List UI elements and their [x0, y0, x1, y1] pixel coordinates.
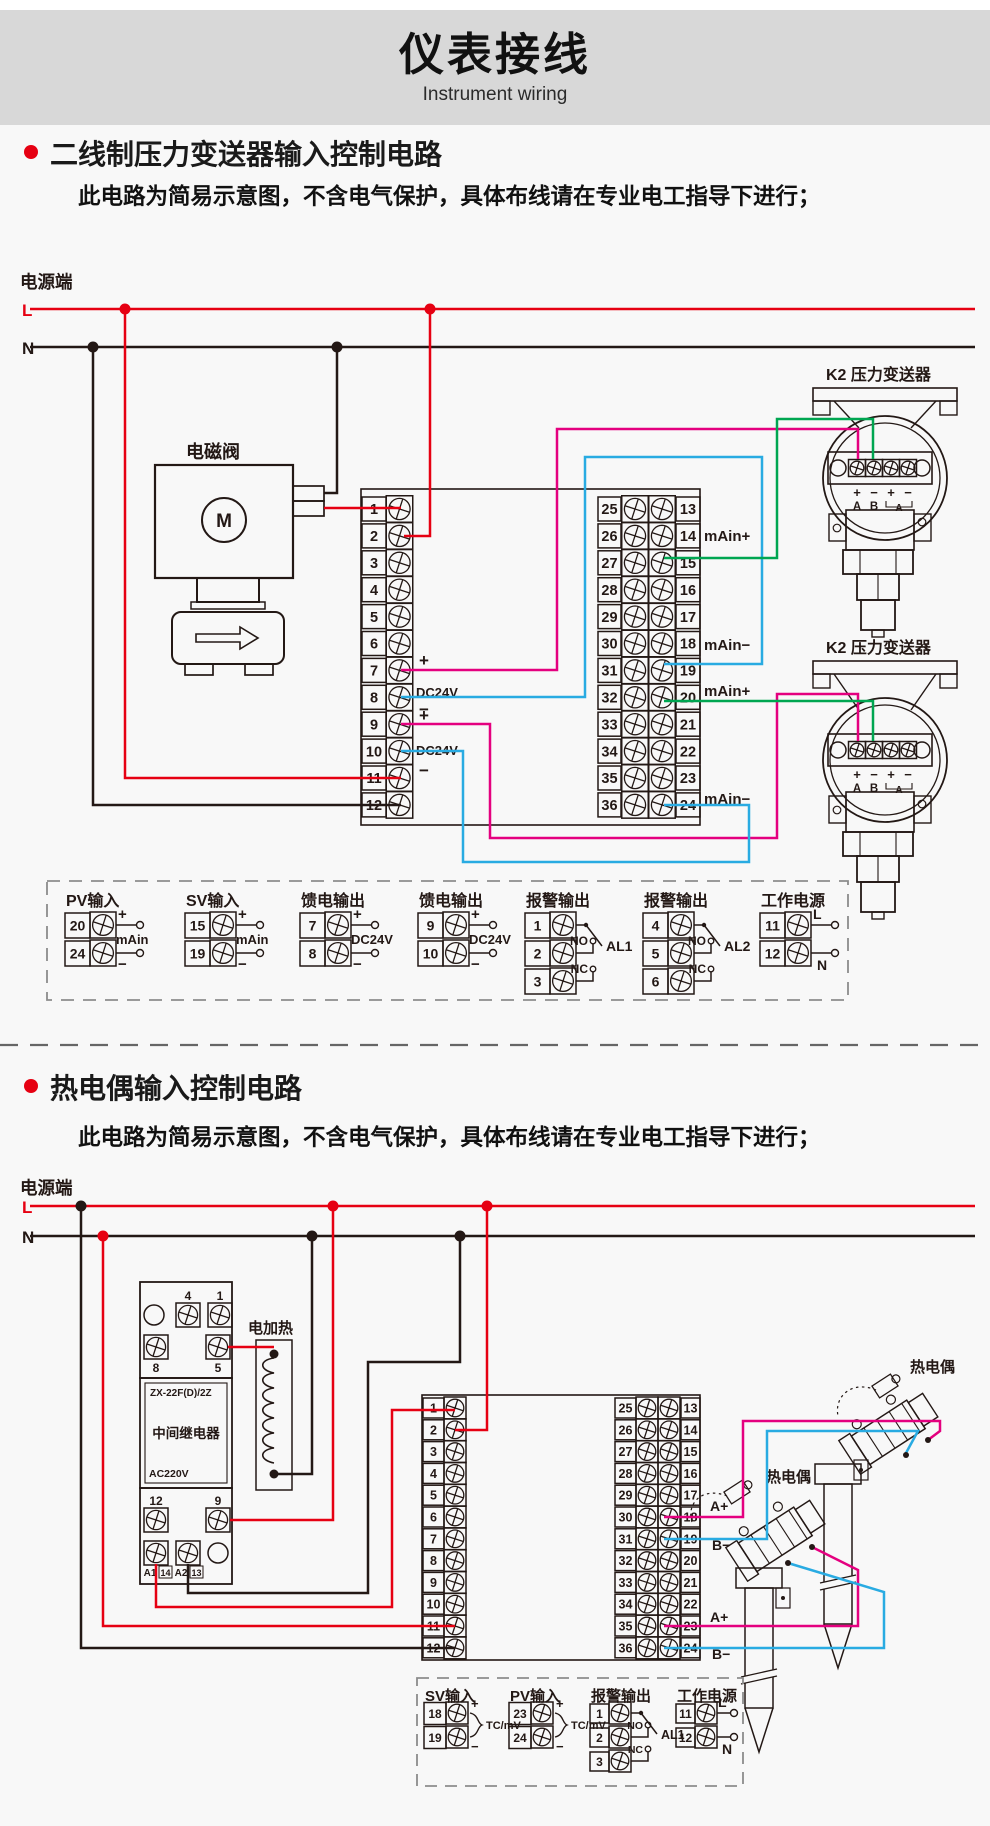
background: 仪表接线Instrument wiring	[0, 0, 990, 1826]
line-n-label: N	[22, 1228, 34, 1247]
nc-label: NC	[571, 962, 589, 976]
terminal-number: 12	[765, 946, 781, 962]
relay-pin-label: 14	[160, 1568, 170, 1578]
terminal-number: 11	[679, 1707, 692, 1721]
terminal-number: 14	[680, 529, 696, 545]
junction-dot	[98, 1231, 109, 1242]
terminal-number: 1	[370, 502, 378, 518]
terminal-number: 6	[652, 974, 660, 990]
sign-label: −	[870, 485, 878, 500]
sign-label: −	[471, 956, 480, 973]
terminal-number: 33	[601, 717, 617, 733]
bullet-icon	[24, 145, 38, 159]
terminal-number: 3	[430, 1445, 437, 1459]
terminal-number: 1	[596, 1707, 603, 1721]
junction-dot	[925, 1437, 931, 1443]
terminal-number: 21	[684, 1576, 698, 1590]
section-2-heading: 热电偶输入控制电路	[50, 1072, 303, 1104]
junction-dot	[455, 1231, 466, 1242]
terminal-number: 9	[427, 918, 435, 934]
terminal-number: 32	[601, 691, 617, 707]
terminal-number: 8	[309, 946, 317, 962]
terminal-number: 11	[765, 918, 780, 934]
transmitter-label: K2 压力变送器	[826, 638, 932, 657]
sign-label: +	[238, 906, 247, 923]
terminal-number: 4	[430, 1467, 437, 1481]
terminal-number: 19	[680, 664, 696, 680]
terminal-number: 16	[684, 1467, 698, 1481]
terminal-number: 17	[684, 1489, 698, 1503]
sign-label: −	[870, 767, 878, 782]
terminal-number: 20	[684, 1554, 698, 1568]
terminal-number: 6	[430, 1511, 437, 1525]
terminal-number: 17	[680, 610, 696, 626]
relay-pin-label: 13	[191, 1568, 201, 1578]
a-plus-label: A+	[710, 1498, 728, 1514]
instrument-wiring-diagram: 仪表接线Instrument wiring二线制压力变送器输入控制电路此电路为简…	[0, 0, 990, 1826]
sign-label: +	[853, 767, 861, 782]
sign-label: −	[353, 956, 362, 973]
terminal-number: 15	[190, 918, 206, 934]
junction-dot	[482, 1201, 493, 1212]
nc-label: NC	[628, 1744, 644, 1756]
sign-label: +	[419, 706, 429, 725]
line-n-label: N	[817, 957, 827, 973]
terminal-number: 4	[370, 583, 378, 599]
junction-dot	[76, 1201, 87, 1212]
heater-label: 电加热	[248, 1319, 293, 1337]
section-1-heading: 二线制压力变送器输入控制电路	[50, 138, 443, 170]
line-l-label: L	[22, 301, 32, 320]
terminal-number: 9	[430, 1576, 437, 1590]
junction-dot	[809, 1544, 815, 1550]
terminal-number: 9	[370, 717, 378, 733]
loop-a-label: A	[895, 503, 902, 514]
terminal-number: 28	[601, 583, 617, 599]
terminal-number: 3	[534, 974, 542, 990]
sign-label: −	[556, 1739, 564, 1754]
terminal-number: 32	[619, 1554, 633, 1568]
mid-label: DC24V	[469, 932, 511, 947]
junction-dot	[785, 1560, 791, 1566]
line-n-label: N	[22, 339, 34, 358]
terminal-number: 26	[601, 529, 617, 545]
power-terminal-label: 电源端	[20, 272, 73, 292]
terminal-number: 7	[370, 664, 378, 680]
sign-label: +	[471, 906, 480, 923]
sign-label: −	[419, 761, 429, 780]
junction-dot	[88, 342, 99, 353]
junction-dot	[120, 304, 131, 315]
terminal-number: 3	[370, 556, 378, 572]
sign-label: −	[238, 956, 247, 973]
loop-a-label: A	[895, 785, 902, 796]
terminal-number: 8	[370, 691, 378, 707]
junction-dot	[307, 1231, 318, 1242]
terminal-number: 20	[680, 691, 696, 707]
terminal-number: 3	[596, 1755, 603, 1769]
terminal-number: 34	[619, 1598, 633, 1612]
terminal-number: 29	[619, 1489, 633, 1503]
terminal-number: 31	[601, 664, 617, 680]
terminal-number: 23	[680, 771, 696, 787]
page: 仪表接线Instrument wiring二线制压力变送器输入控制电路此电路为简…	[0, 0, 990, 1826]
terminal-number: 5	[652, 946, 660, 962]
legend-title: 报警输出	[644, 891, 708, 910]
terminal-number: 5	[370, 610, 378, 626]
ab-label: B	[870, 783, 878, 795]
junction-dot	[332, 342, 343, 353]
terminal-number: 30	[619, 1511, 633, 1525]
solenoid-motor-label: M	[216, 511, 232, 532]
sign-label: +	[887, 485, 895, 500]
solenoid-label: 电磁阀	[186, 441, 240, 462]
ab-label: B	[870, 501, 878, 513]
junction-dot	[781, 1596, 785, 1600]
terminal-number: 13	[680, 502, 696, 518]
sign-label: −	[471, 1739, 479, 1754]
terminal-number: 20	[70, 918, 86, 934]
terminal-number: 5	[430, 1489, 437, 1503]
terminal-number: 15	[684, 1445, 698, 1459]
mid-label: mAin	[236, 932, 269, 947]
terminal-number: 19	[190, 946, 206, 962]
relay-pin-label: 5	[215, 1361, 222, 1375]
terminal-number: 12	[679, 1731, 693, 1745]
sign-label: +	[887, 767, 895, 782]
terminal-number: 14	[684, 1423, 698, 1437]
terminal-number: 2	[534, 946, 542, 962]
legend-title: 报警输出	[526, 891, 590, 910]
terminal-number: 25	[601, 502, 617, 518]
relay-model: ZX-22F(D)/2Z	[150, 1388, 212, 1399]
terminal-number: 18	[428, 1707, 442, 1721]
ab-label: A	[853, 783, 861, 795]
terminal-number: 31	[619, 1532, 633, 1546]
relay-name: 中间继电器	[152, 1425, 220, 1441]
terminal-number: 1	[430, 1402, 437, 1416]
terminal-number: 2	[370, 529, 378, 545]
terminal-number: 29	[601, 610, 617, 626]
relay-pin-label: A2	[175, 1568, 188, 1579]
alarm-name: AL1	[606, 938, 633, 954]
page-background	[0, 0, 990, 1826]
junction-dot	[425, 304, 436, 315]
terminal-number: 24	[513, 1731, 527, 1745]
line-n-label: N	[722, 1741, 732, 1757]
legend-title: PV输入	[66, 891, 119, 910]
a-plus-label: A+	[710, 1609, 728, 1625]
main-minus-label: mAin−	[704, 637, 751, 654]
junction-dot	[903, 1452, 909, 1458]
relay-pin-label: 9	[215, 1494, 222, 1508]
no-label: NO	[688, 934, 706, 948]
terminal-number: 13	[684, 1402, 698, 1416]
sign-label: −	[904, 767, 912, 782]
terminal-number: 23	[513, 1707, 527, 1721]
mid-label: mAin	[116, 932, 149, 947]
relay-pin-label: 4	[185, 1289, 192, 1303]
junction-dot	[270, 1350, 279, 1359]
no-label: NO	[570, 934, 588, 948]
sign-label: +	[471, 1696, 479, 1711]
terminal-number: 8	[430, 1554, 437, 1568]
alarm-name: AL2	[724, 938, 751, 954]
terminal-number: 25	[619, 1402, 633, 1416]
terminal-number: 33	[619, 1576, 633, 1590]
terminal-number: 30	[601, 637, 617, 653]
terminal-number: 28	[619, 1467, 633, 1481]
thermocouple-label: 热电偶	[910, 1358, 955, 1376]
relay-voltage: AC220V	[149, 1468, 189, 1480]
page-subtitle: Instrument wiring	[423, 84, 568, 105]
nc-label: NC	[689, 962, 707, 976]
sign-label: +	[353, 906, 362, 923]
sign-label: +	[853, 485, 861, 500]
terminal-number: 24	[70, 946, 86, 962]
terminal-number: 4	[652, 918, 660, 934]
terminal-number: 22	[684, 1598, 698, 1612]
terminal-number: 10	[423, 946, 439, 962]
terminal-number: 27	[619, 1445, 633, 1459]
terminal-number: 6	[370, 637, 378, 653]
relay-pin-label: 1	[217, 1289, 224, 1303]
junction-dot	[859, 1468, 863, 1472]
ab-label: A	[853, 501, 861, 513]
section-1-note: 此电路为简易示意图，不含电气保护，具体布线请在专业电工指导下进行；	[78, 183, 821, 209]
page-title: 仪表接线	[398, 29, 591, 80]
relay-pin-label: 12	[149, 1494, 163, 1508]
terminal-number: 2	[430, 1423, 437, 1437]
terminal-number: 27	[601, 556, 617, 572]
relay-pin-label: 8	[153, 1361, 160, 1375]
sign-label: −	[904, 485, 912, 500]
terminal-number: 34	[601, 744, 617, 760]
sign-label: +	[118, 906, 127, 923]
terminal-number: 2	[596, 1731, 603, 1745]
section-2-note: 此电路为简易示意图，不含电气保护，具体布线请在专业电工指导下进行；	[78, 1124, 821, 1150]
top-margin	[0, 0, 990, 10]
no-label: NO	[627, 1720, 643, 1732]
terminal-number: 7	[430, 1532, 437, 1546]
sign-label: +	[419, 651, 429, 670]
terminal-number: 35	[601, 771, 617, 787]
main-plus-label: mAin+	[704, 528, 751, 545]
main-plus-label: mAin+	[704, 683, 751, 700]
junction-dot	[328, 1201, 339, 1212]
terminal-number: 36	[619, 1641, 633, 1655]
power-terminal-label: 电源端	[20, 1178, 73, 1198]
terminal-number: 18	[680, 637, 696, 653]
sign-label: +	[556, 1696, 564, 1711]
terminal-number: 7	[309, 918, 317, 934]
transmitter-label: K2 压力变送器	[826, 365, 932, 384]
terminal-number: 22	[680, 744, 696, 760]
line-l-label: L	[718, 1694, 727, 1710]
terminal-number: 36	[601, 798, 617, 814]
legend-title: SV输入	[186, 891, 239, 910]
mid-label: DC24V	[351, 932, 393, 947]
bullet-icon	[24, 1079, 38, 1093]
terminal-number: 26	[619, 1423, 633, 1437]
terminal-number: 1	[534, 918, 542, 934]
thermocouple-label: 热电偶	[766, 1468, 811, 1486]
terminal-number: 16	[680, 583, 696, 599]
sign-label: −	[118, 956, 127, 973]
line-l-label: L	[813, 906, 822, 922]
line-l-label: L	[22, 1198, 32, 1217]
terminal-number: 10	[366, 744, 382, 760]
terminal-number: 10	[427, 1598, 441, 1612]
terminal-number: 35	[619, 1620, 633, 1634]
terminal-number: 19	[428, 1731, 442, 1745]
terminal-number: 21	[680, 717, 696, 733]
